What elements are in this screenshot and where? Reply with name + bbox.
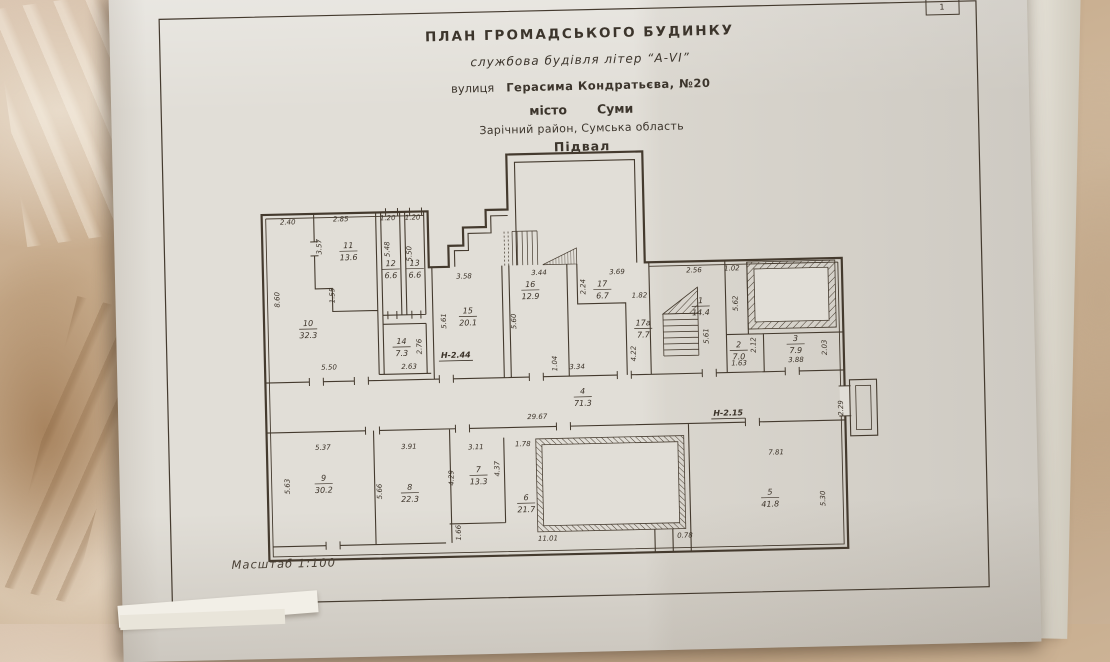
room-area: 20.1	[459, 318, 477, 327]
dimension-value: 3.88	[788, 356, 804, 364]
photo-of-floor-plan: { "page": { "page_number": "1" }, "title…	[0, 0, 1110, 624]
dimension-value: 5.50	[321, 363, 337, 371]
room-area: 6.7	[596, 291, 610, 300]
dimension-value: 5.61	[440, 313, 448, 329]
room-area: 6.6	[385, 271, 398, 280]
room-area: 41.8	[761, 499, 779, 508]
dimension-value: 1.78	[515, 440, 531, 448]
dimension-value: 2.03	[821, 339, 829, 355]
room-area: 21.7	[517, 505, 536, 514]
note-underline	[439, 360, 473, 361]
dimension-value: 3.69	[609, 268, 625, 276]
stairs-icon	[662, 287, 699, 356]
dimension-value: 3.57	[315, 238, 323, 254]
room-area: 7.3	[395, 349, 408, 358]
dimension-value: 1.82	[632, 291, 648, 299]
room-number: 10	[303, 319, 313, 328]
dimension-value: 0.78	[677, 531, 693, 539]
dimension-value: 2.56	[686, 266, 702, 274]
room-area: 6.6	[409, 270, 422, 279]
room-number: 4	[580, 387, 585, 396]
ramp-icon	[542, 248, 576, 265]
dimension-value: 1.66	[455, 524, 463, 540]
room-number: 6	[523, 493, 528, 502]
dimension-value: 4.29	[447, 469, 455, 485]
dimension-value: 2.85	[333, 215, 349, 223]
dimension-value: 4.22	[630, 345, 638, 361]
room-number: 15	[463, 306, 473, 315]
dimension-value: 1.63	[731, 359, 747, 367]
page-number: 1	[939, 3, 944, 12]
dimension-value: 2.12	[749, 337, 757, 353]
room-area: 7.7	[637, 330, 651, 339]
dimension-value: 1.02	[724, 264, 740, 272]
dimension-value: 11.01	[538, 534, 558, 542]
room-number: 14	[396, 337, 406, 346]
room-number: 16	[525, 280, 535, 289]
dimension-value: 5.37	[315, 444, 331, 452]
room-number: 7	[476, 465, 482, 474]
room-area: 12.9	[521, 292, 539, 301]
room-area: 7.9	[789, 346, 802, 355]
room-number: 3	[793, 334, 798, 343]
hatched-pit	[536, 436, 686, 532]
hatched-shaft	[747, 260, 836, 329]
height-note: Н-2.44	[441, 350, 471, 360]
room-area: 13.3	[470, 477, 488, 486]
room-number: 1	[698, 296, 703, 305]
note-underline	[711, 418, 745, 419]
room-number: 11	[343, 241, 353, 250]
dimension-value: 2.40	[280, 218, 296, 226]
dimension-value: 1.20	[380, 214, 396, 222]
dimension-value: 2.29	[837, 400, 845, 416]
entrance-porch	[849, 379, 877, 436]
dimension-value: 7.81	[768, 448, 784, 456]
dimension-value: 5.48	[383, 241, 391, 257]
dimension-value: 1.55	[328, 287, 336, 303]
dimension-value: 3.34	[569, 363, 585, 371]
dimension-value: 5.62	[732, 295, 740, 311]
dimension-value: 5.30	[819, 490, 827, 506]
dimension-value: 2.63	[401, 363, 417, 371]
floor-plan-sheet: ПЛАН ГРОМАДСЬКОГО БУДИНКУ службова будів…	[109, 0, 1042, 662]
room-area: 30.2	[315, 486, 333, 495]
dimension-value: 29.67	[527, 413, 548, 421]
room-number: 9	[321, 474, 326, 483]
room-number: 2	[736, 340, 741, 349]
room-number: 5	[767, 488, 772, 497]
dimension-value: 5.66	[376, 483, 384, 499]
height-note: Н-2.15	[713, 408, 743, 418]
dimension-value: 5.50	[405, 245, 413, 261]
dimension-value: 5.61	[702, 328, 710, 344]
entry-stairs-icon	[504, 230, 577, 266]
dimension-value: 3.44	[531, 269, 547, 277]
room-area: 13.6	[340, 253, 358, 262]
dimension-value: 3.91	[401, 443, 417, 451]
dimension-value: 3.58	[456, 272, 472, 280]
dimension-value: 5.63	[284, 479, 292, 495]
dimension-value: 5.60	[510, 313, 518, 329]
room-area: 32.3	[299, 331, 317, 340]
dimension-value: 2.24	[579, 279, 587, 295]
room-area: 22.3	[401, 495, 419, 504]
height-notes: Н-2.44Н-2.15	[439, 344, 746, 425]
room-number: 17а	[635, 318, 650, 327]
dimension-value: 1.20	[405, 213, 421, 221]
dimension-value: 3.11	[468, 443, 484, 451]
room-number: 12	[386, 259, 396, 268]
room-number: 8	[407, 483, 412, 492]
dimension-value: 4.37	[493, 460, 501, 476]
scale-label: Масштаб 1:100	[231, 555, 336, 571]
dimension-value: 2.76	[415, 338, 423, 354]
dimension-value: 8.60	[273, 291, 281, 307]
room-area: 71.3	[574, 399, 592, 408]
dimension-value: 1.04	[551, 356, 559, 372]
room-area: 14.4	[692, 308, 710, 317]
room-number: 17	[597, 279, 608, 288]
